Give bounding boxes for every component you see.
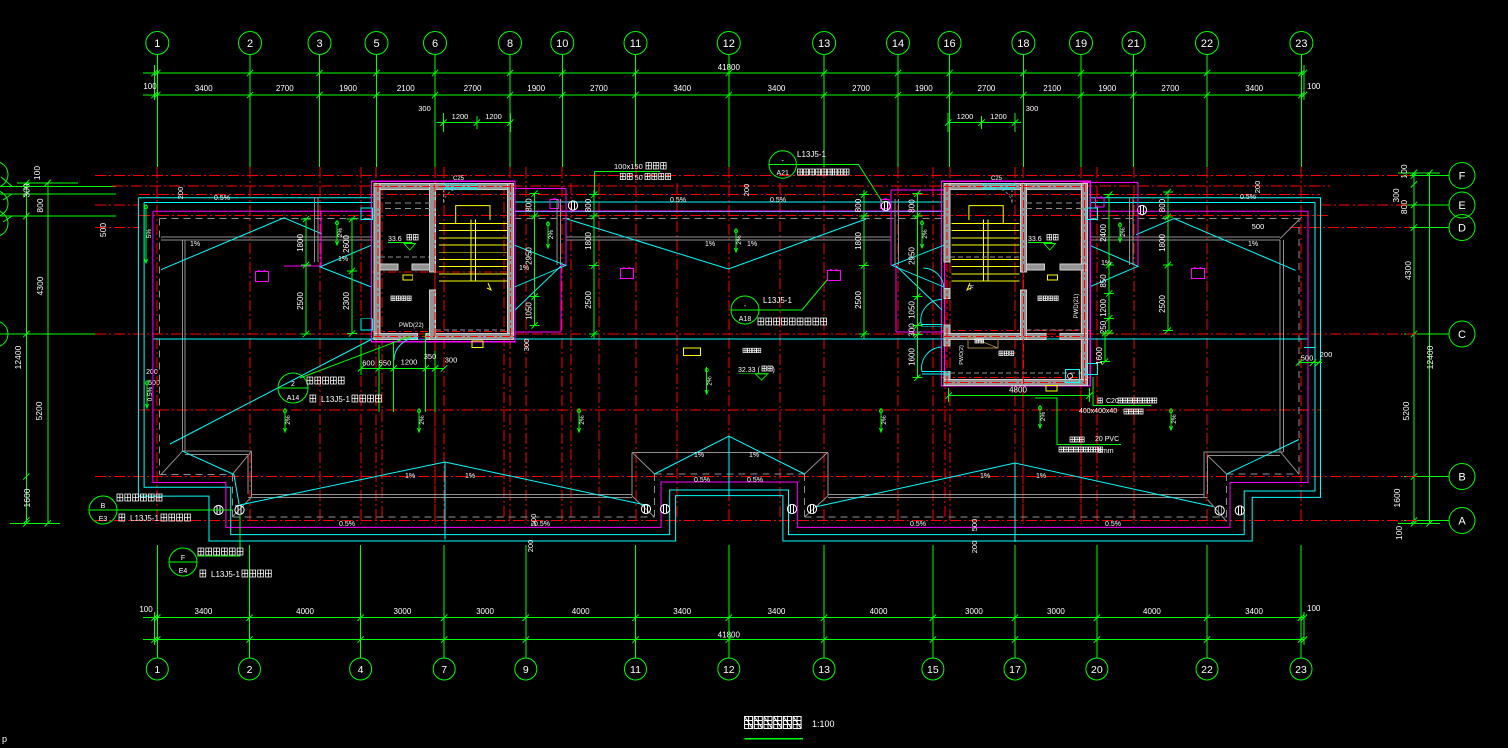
- svg-text:2700: 2700: [464, 84, 482, 93]
- svg-text:12400: 12400: [13, 345, 23, 369]
- svg-text:4: 4: [358, 664, 364, 676]
- svg-text:2%: 2%: [548, 230, 555, 240]
- svg-text:20 PVC: 20 PVC: [1095, 436, 1119, 443]
- svg-text:800: 800: [1158, 198, 1167, 212]
- svg-text:800: 800: [584, 198, 593, 212]
- svg-text:下: 下: [968, 285, 974, 292]
- svg-text:850: 850: [1099, 274, 1108, 288]
- svg-text:33.6: 33.6: [388, 236, 402, 243]
- svg-text:1050: 1050: [907, 301, 916, 319]
- svg-text:3000: 3000: [965, 607, 983, 616]
- svg-text:L13J5-1: L13J5-1: [763, 296, 792, 305]
- svg-text:5200: 5200: [34, 401, 44, 420]
- svg-text:2700: 2700: [978, 84, 996, 93]
- svg-text:2%: 2%: [579, 415, 586, 425]
- svg-text:500: 500: [970, 519, 979, 532]
- svg-text:C25: C25: [453, 176, 465, 182]
- svg-text:4000: 4000: [572, 607, 590, 616]
- svg-text:1900: 1900: [1098, 84, 1116, 93]
- svg-text:14: 14: [892, 38, 904, 50]
- svg-text:500: 500: [98, 223, 108, 237]
- svg-text:1%: 1%: [405, 473, 415, 480]
- svg-text:2300: 2300: [342, 292, 351, 310]
- svg-text:1%: 1%: [465, 473, 475, 480]
- svg-text:2700: 2700: [276, 84, 294, 93]
- svg-text:E4: E4: [179, 568, 188, 575]
- svg-text:3000: 3000: [476, 607, 494, 616]
- svg-text:1%: 1%: [1248, 241, 1258, 248]
- svg-text:2: 2: [247, 38, 253, 50]
- svg-text:4300: 4300: [35, 276, 45, 295]
- svg-text:200: 200: [526, 540, 535, 553]
- svg-text:11: 11: [630, 38, 641, 50]
- svg-text:5%: 5%: [146, 229, 153, 239]
- svg-text:1%: 1%: [694, 452, 704, 459]
- svg-text:1600: 1600: [907, 348, 916, 366]
- svg-text:250: 250: [1099, 320, 1108, 334]
- svg-text:350: 350: [424, 352, 437, 361]
- svg-text:0.5%: 0.5%: [670, 197, 686, 204]
- svg-text:2%: 2%: [736, 235, 743, 245]
- svg-text:200: 200: [146, 369, 158, 376]
- svg-text:100: 100: [1307, 82, 1321, 91]
- svg-text:2%: 2%: [881, 415, 888, 425]
- svg-text:5: 5: [373, 38, 379, 50]
- svg-text:4000: 4000: [870, 607, 888, 616]
- svg-text:2%: 2%: [1171, 414, 1178, 424]
- svg-text:200: 200: [1320, 350, 1333, 359]
- svg-text:100: 100: [1394, 526, 1404, 540]
- svg-text:2100: 2100: [1043, 84, 1061, 93]
- svg-text:100: 100: [1307, 604, 1321, 613]
- svg-text:12400: 12400: [1425, 345, 1435, 369]
- svg-text:4300: 4300: [1403, 261, 1413, 280]
- svg-text:3400: 3400: [673, 607, 691, 616]
- svg-text:F: F: [1459, 171, 1466, 183]
- svg-text:6: 6: [432, 38, 438, 50]
- svg-text:p: p: [2, 734, 7, 744]
- svg-text:1900: 1900: [527, 84, 545, 93]
- svg-text:C: C: [1458, 329, 1466, 341]
- svg-text:1200: 1200: [485, 112, 502, 121]
- svg-text:17: 17: [1009, 664, 1021, 676]
- svg-text:1: 1: [154, 38, 160, 50]
- svg-text:1600: 1600: [22, 488, 32, 507]
- svg-text:1600: 1600: [1095, 347, 1104, 365]
- svg-text:2%: 2%: [337, 228, 344, 238]
- svg-text:22: 22: [1201, 664, 1213, 676]
- svg-text:A21: A21: [776, 170, 789, 177]
- svg-text:E: E: [1458, 200, 1465, 212]
- svg-text:1200: 1200: [401, 358, 418, 367]
- svg-text:0.5%: 0.5%: [910, 521, 926, 528]
- svg-text:4800: 4800: [1009, 386, 1027, 395]
- svg-text:3400: 3400: [195, 84, 213, 93]
- svg-text:PWD(21): PWD(21): [1074, 294, 1080, 319]
- svg-text:): ): [773, 367, 775, 374]
- svg-text:11: 11: [630, 664, 641, 676]
- svg-text:1200: 1200: [452, 112, 469, 121]
- svg-text:2: 2: [291, 381, 295, 388]
- svg-text:300: 300: [445, 356, 458, 365]
- svg-text:0.5%: 0.5%: [1240, 194, 1256, 201]
- svg-text:100: 100: [143, 82, 157, 91]
- svg-text:1%: 1%: [747, 241, 757, 248]
- svg-text:16: 16: [943, 38, 955, 50]
- svg-text:1:100: 1:100: [812, 719, 835, 729]
- svg-text:23: 23: [1295, 664, 1307, 676]
- svg-text:3000: 3000: [394, 607, 412, 616]
- svg-text:L13J5-1: L13J5-1: [321, 395, 350, 404]
- svg-text:18: 18: [1017, 38, 1029, 50]
- svg-text:300: 300: [907, 323, 916, 337]
- svg-text:L13J5-1: L13J5-1: [797, 150, 826, 159]
- svg-text:0.5%: 0.5%: [747, 477, 763, 484]
- svg-text:1200: 1200: [990, 112, 1007, 121]
- svg-text:3400: 3400: [768, 607, 786, 616]
- svg-text:2%: 2%: [419, 415, 426, 425]
- svg-text:800: 800: [1399, 200, 1409, 214]
- svg-text:12: 12: [723, 664, 735, 676]
- svg-text:1%: 1%: [190, 241, 200, 248]
- svg-text:1%: 1%: [1036, 473, 1046, 480]
- svg-text:300: 300: [1026, 104, 1039, 113]
- svg-text:1800: 1800: [854, 232, 863, 250]
- svg-text:D: D: [1458, 223, 1466, 235]
- svg-text:200: 200: [176, 187, 185, 200]
- svg-text:1800: 1800: [296, 234, 305, 252]
- svg-text:800: 800: [854, 198, 863, 212]
- svg-text:8: 8: [507, 38, 513, 50]
- svg-text:200: 200: [742, 184, 751, 197]
- svg-text:L13J5-1: L13J5-1: [130, 514, 159, 523]
- svg-text:2%: 2%: [1040, 412, 1047, 422]
- svg-text:4000: 4000: [1143, 607, 1161, 616]
- svg-text:600: 600: [362, 359, 375, 368]
- svg-text:200: 200: [1253, 181, 1262, 194]
- svg-text:1600: 1600: [1392, 488, 1402, 507]
- svg-text:1%: 1%: [338, 256, 348, 263]
- svg-text:21: 21: [1127, 38, 1139, 50]
- svg-text:3400: 3400: [673, 84, 691, 93]
- svg-text:300: 300: [522, 339, 531, 352]
- svg-text:400x400x40: 400x400x40: [1079, 408, 1117, 415]
- svg-text:22: 22: [1201, 38, 1213, 50]
- svg-text:0.5%: 0.5%: [770, 197, 786, 204]
- svg-text:0.5%: 0.5%: [339, 521, 355, 528]
- svg-text:E3: E3: [99, 516, 108, 523]
- svg-text:3000: 3000: [1047, 607, 1065, 616]
- svg-text:20: 20: [1091, 664, 1103, 676]
- svg-text:7: 7: [441, 664, 447, 676]
- svg-text:13: 13: [818, 664, 830, 676]
- svg-text:3400: 3400: [1245, 607, 1263, 616]
- svg-text:1800: 1800: [584, 232, 593, 250]
- svg-text:1%: 1%: [705, 241, 715, 248]
- svg-text:100: 100: [139, 605, 153, 614]
- svg-text:2500: 2500: [1158, 295, 1167, 313]
- svg-text:A: A: [1458, 516, 1466, 528]
- svg-text:2700: 2700: [852, 84, 870, 93]
- svg-text:800: 800: [35, 198, 45, 212]
- svg-text:2700: 2700: [1161, 84, 1179, 93]
- svg-text:1900: 1900: [915, 84, 933, 93]
- svg-text:5200: 5200: [1401, 401, 1411, 420]
- svg-text:2100: 2100: [397, 84, 415, 93]
- svg-text:200: 200: [970, 541, 979, 554]
- svg-text:2950: 2950: [907, 247, 916, 265]
- svg-text:500: 500: [1252, 222, 1265, 231]
- svg-text:0.5%: 0.5%: [694, 477, 710, 484]
- svg-text:3400: 3400: [195, 607, 213, 616]
- svg-text:1%: 1%: [519, 265, 529, 272]
- svg-text:3400: 3400: [768, 84, 786, 93]
- svg-text:L13J5-1: L13J5-1: [211, 570, 240, 579]
- svg-text:2%: 2%: [285, 415, 292, 425]
- svg-text:0.5%: 0.5%: [147, 386, 154, 401]
- svg-text:1%: 1%: [1101, 260, 1111, 267]
- svg-text:100: 100: [32, 166, 42, 180]
- svg-text:800: 800: [907, 199, 916, 213]
- svg-text:500: 500: [1301, 354, 1314, 363]
- svg-text:3: 3: [316, 38, 322, 50]
- svg-text:50: 50: [635, 173, 643, 182]
- svg-text:2500: 2500: [296, 292, 305, 310]
- svg-text:2500: 2500: [584, 291, 593, 309]
- svg-text:19: 19: [1075, 38, 1087, 50]
- svg-text:1050: 1050: [525, 302, 534, 320]
- svg-text:PWD(22): PWD(22): [399, 323, 424, 329]
- svg-text:0.5%: 0.5%: [1105, 521, 1121, 528]
- svg-text:23: 23: [1295, 38, 1307, 50]
- svg-text:F: F: [181, 555, 185, 562]
- svg-text:3400: 3400: [1245, 84, 1263, 93]
- svg-text:12: 12: [723, 38, 735, 50]
- svg-text:9: 9: [523, 664, 529, 676]
- svg-text:1%: 1%: [980, 473, 990, 480]
- svg-text:100x150: 100x150: [614, 162, 643, 171]
- svg-text:0.5%: 0.5%: [534, 521, 550, 528]
- svg-text:13: 13: [818, 38, 830, 50]
- svg-text:1200: 1200: [957, 112, 974, 121]
- svg-text:B: B: [1458, 472, 1465, 484]
- svg-text:10: 10: [556, 38, 568, 50]
- svg-text:B: B: [101, 503, 106, 510]
- svg-text:1800: 1800: [1158, 234, 1167, 252]
- svg-text:2%: 2%: [1120, 227, 1127, 237]
- svg-text:800: 800: [525, 198, 534, 212]
- svg-text:2950: 2950: [525, 247, 534, 265]
- svg-text:1200: 1200: [1099, 299, 1108, 317]
- svg-text:15: 15: [927, 664, 939, 676]
- svg-text:2%: 2%: [707, 376, 714, 386]
- svg-text:550: 550: [379, 359, 392, 368]
- svg-text:4000: 4000: [296, 607, 314, 616]
- svg-text:1900: 1900: [339, 84, 357, 93]
- svg-text:1: 1: [154, 664, 160, 676]
- svg-text:2500: 2500: [854, 291, 863, 309]
- svg-text:A14: A14: [287, 395, 300, 402]
- svg-text:C25: C25: [991, 176, 1003, 182]
- svg-text:C20: C20: [1106, 398, 1119, 405]
- svg-text:2%: 2%: [922, 229, 929, 239]
- svg-text:0.5%: 0.5%: [214, 195, 230, 202]
- svg-text:A18: A18: [739, 316, 752, 323]
- svg-text:8mm: 8mm: [1098, 448, 1114, 455]
- svg-text:100: 100: [1399, 164, 1409, 178]
- svg-text:PWD(2): PWD(2): [959, 345, 965, 365]
- svg-text:2700: 2700: [590, 84, 608, 93]
- svg-text:300: 300: [418, 104, 431, 113]
- svg-text:1%: 1%: [749, 452, 759, 459]
- svg-text:500: 500: [148, 380, 160, 387]
- svg-text:2400: 2400: [1099, 224, 1108, 242]
- svg-text:300: 300: [22, 183, 32, 197]
- svg-text:2: 2: [247, 664, 253, 676]
- svg-text:33.6: 33.6: [1028, 236, 1042, 243]
